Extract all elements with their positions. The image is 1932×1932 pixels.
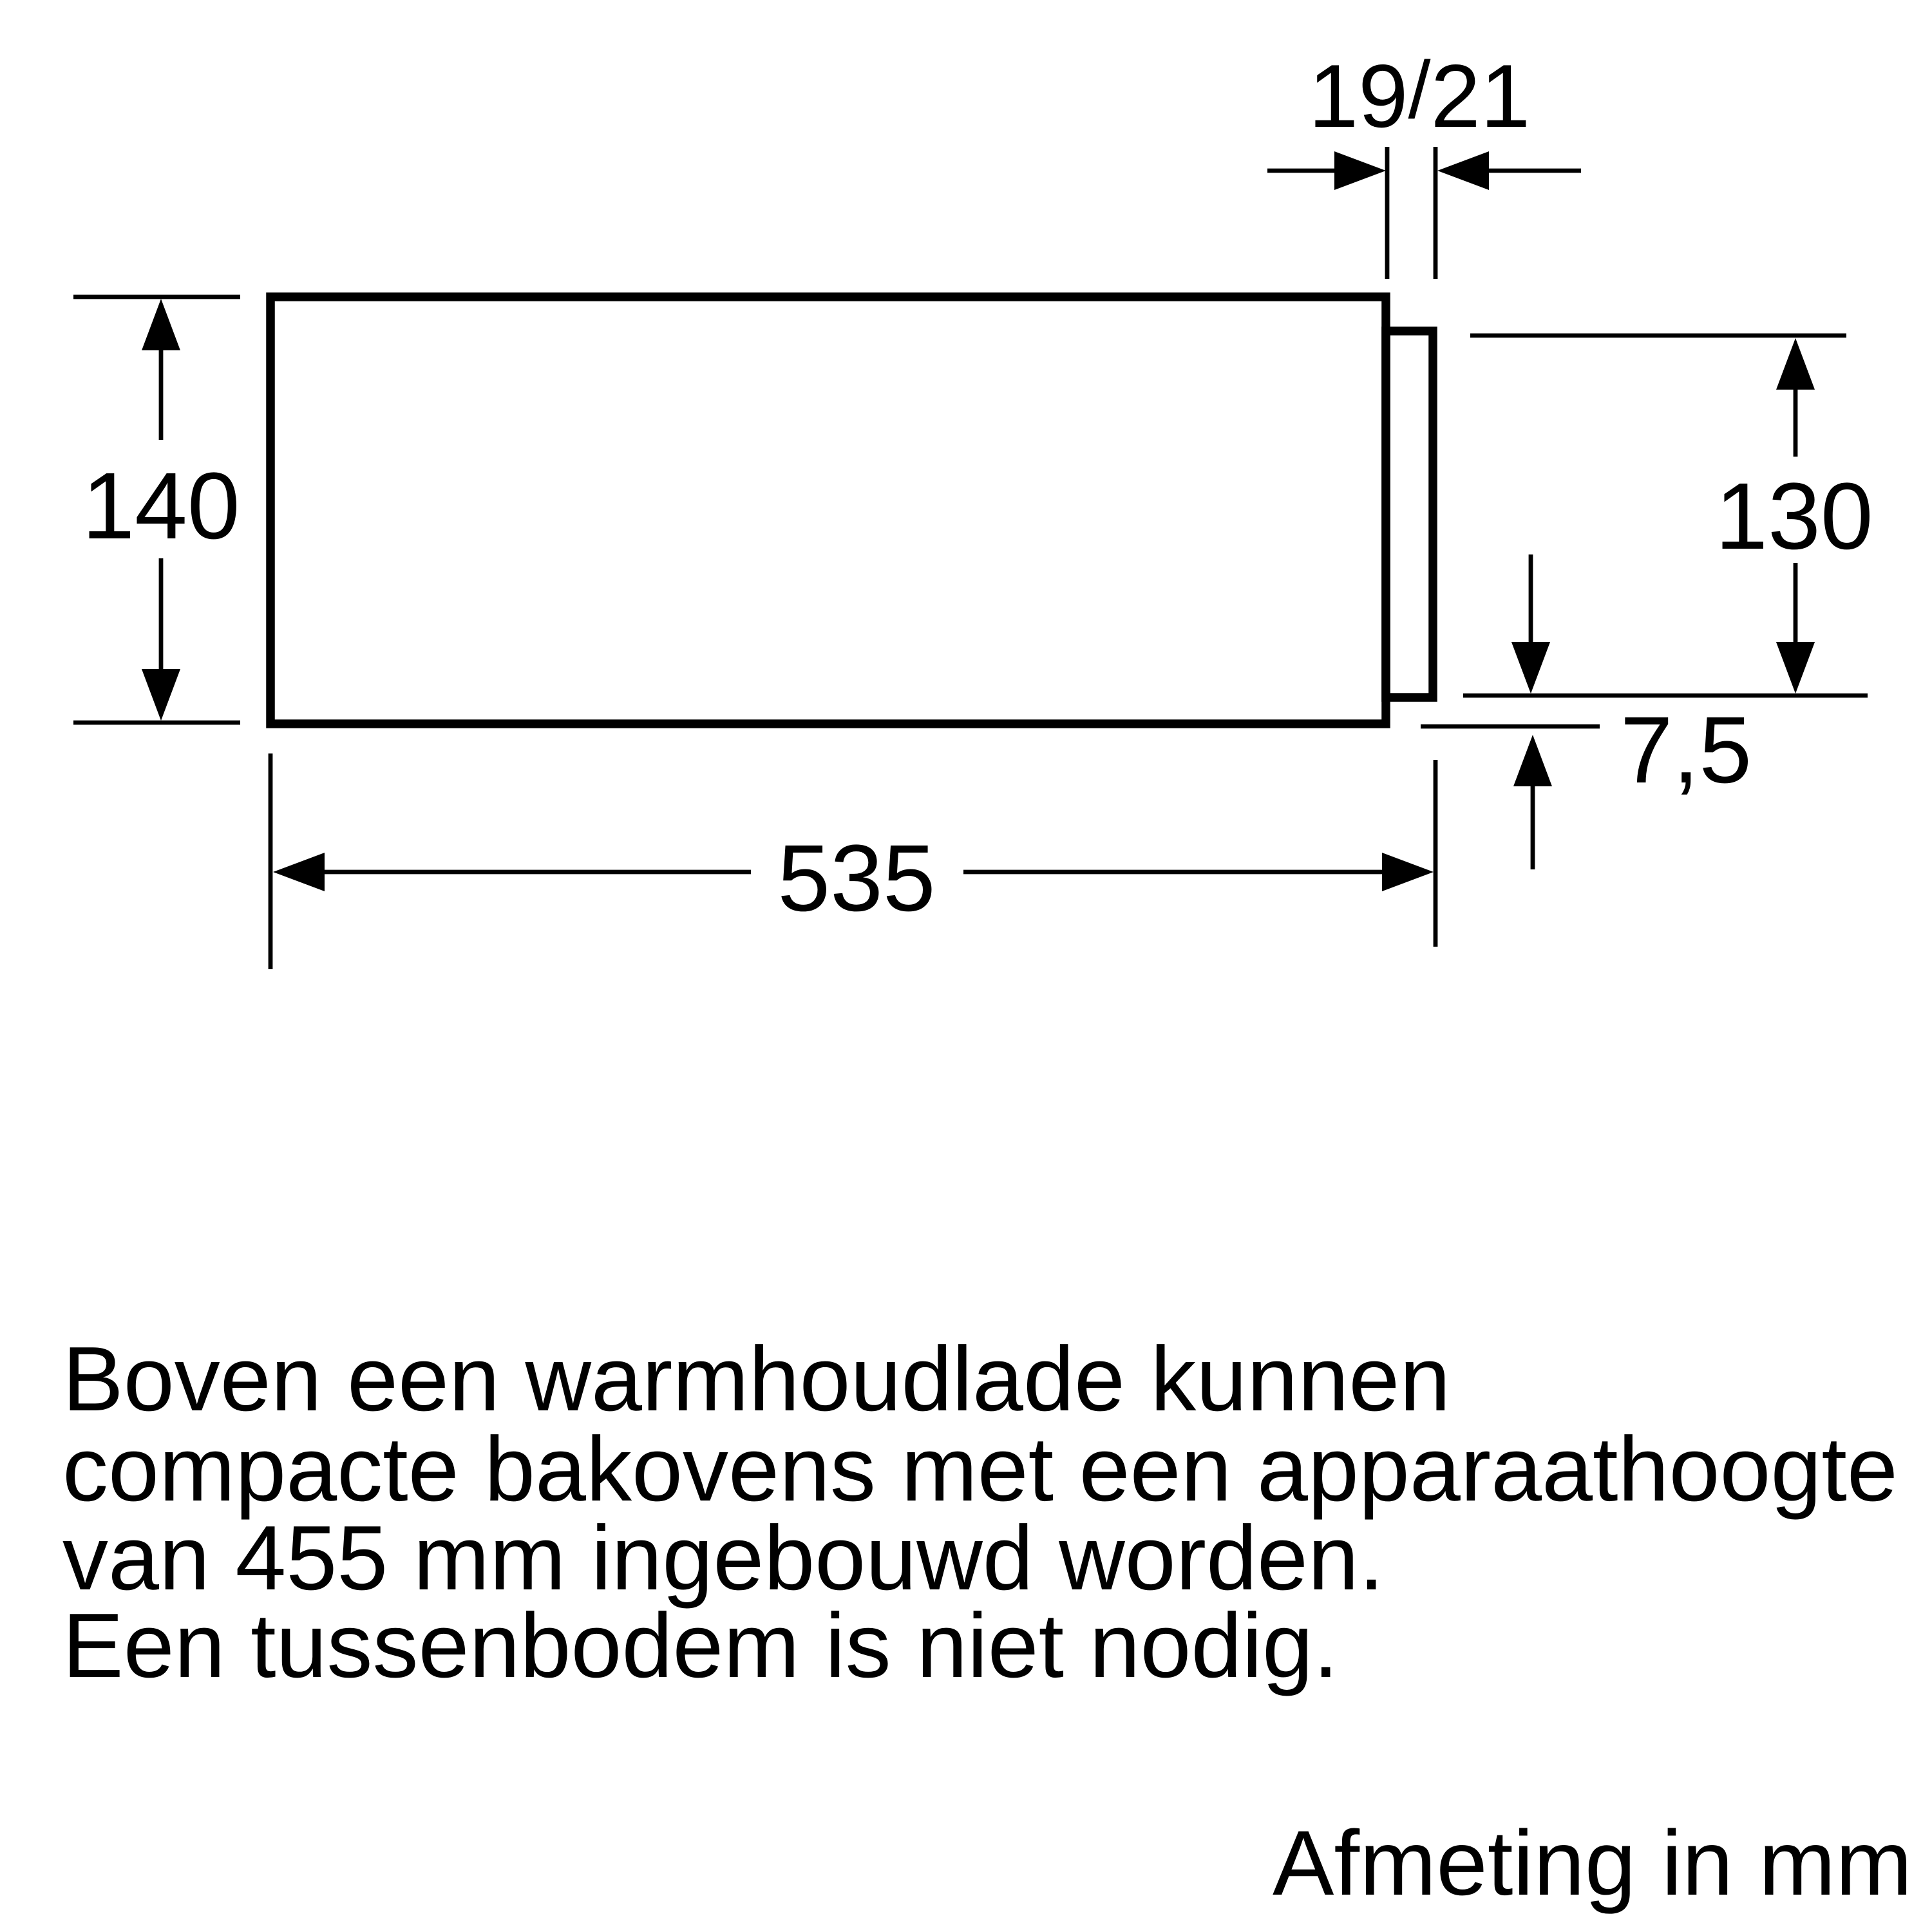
svg-text:140: 140	[82, 453, 240, 559]
svg-text:Boven een warmhoudlade kunnen: Boven een warmhoudlade kunnen	[62, 1328, 1450, 1430]
svg-text:Een tussenbodem is niet nodig.: Een tussenbodem is niet nodig.	[62, 1595, 1338, 1697]
svg-text:7,5: 7,5	[1620, 697, 1752, 803]
svg-text:535: 535	[777, 826, 935, 931]
svg-text:130: 130	[1715, 464, 1873, 569]
svg-text:Afmeting in mm: Afmeting in mm	[1273, 1812, 1912, 1915]
svg-text:compacte bakovens met een appa: compacte bakovens met een apparaathoogte	[62, 1418, 1898, 1520]
svg-text:19/21: 19/21	[1309, 44, 1530, 146]
